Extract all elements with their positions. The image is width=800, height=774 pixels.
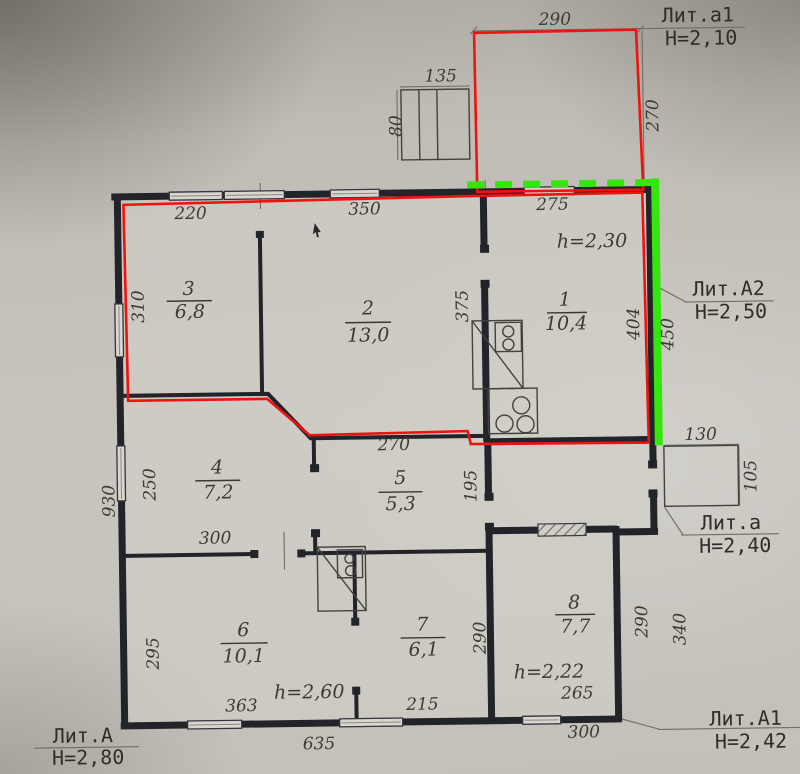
liter-A2-height: Н=2,50 — [695, 299, 768, 324]
dim-bottom-total: 635 — [303, 734, 336, 754]
entrance-steps — [401, 89, 470, 160]
room-2-number: 2 — [361, 297, 374, 319]
room-4-number: 4 — [210, 456, 223, 478]
green-solid-line — [655, 178, 659, 445]
dim-r1-right-inner: 404 — [624, 307, 644, 341]
building-footprint — [115, 186, 659, 725]
liter-A-main-height: Н=2,80 — [52, 745, 125, 770]
dim-r1-right-outer: 450 — [658, 318, 678, 352]
dim-r4-bottom: 300 — [199, 528, 232, 548]
dim-r7-bottom: 215 — [405, 694, 439, 714]
room-6-area: 10,1 — [222, 645, 265, 668]
room-5-area: 5,3 — [385, 493, 416, 515]
liter-A1: Лит.А1 — [709, 706, 782, 731]
room-3-area: 6,8 — [175, 301, 206, 323]
dim-left-total: 930 — [99, 485, 119, 518]
dim-annex-height: 270 — [643, 99, 663, 133]
dim-r6-bottom: 363 — [225, 696, 258, 716]
room-6-fraction-line — [221, 643, 268, 644]
liter-a1-top-height: Н=2,10 — [665, 25, 738, 50]
floor-plan-svg: 290 270 Лит.а1 Н=2,10 135 80 220 350 275… — [0, 0, 800, 774]
dim-hall-right: 195 — [461, 470, 481, 503]
room-7-number: 7 — [416, 614, 429, 636]
dim-r1-top: 275 — [535, 195, 569, 215]
room-1-ceiling: h=2,30 — [557, 230, 628, 253]
scanned-floor-plan: 290 270 Лит.а1 Н=2,10 135 80 220 350 275… — [0, 0, 800, 774]
dim-r6-left: 295 — [143, 637, 163, 671]
dim-r3-top: 220 — [173, 204, 207, 224]
room-5-number: 5 — [394, 467, 406, 489]
liter-A2: Лит.А2 — [692, 276, 765, 301]
room-8-ceiling: h=2,22 — [514, 660, 585, 683]
room-2-fraction-line — [345, 322, 391, 323]
liter-A-main: Лит.А — [53, 723, 114, 748]
liter-a-porch-height: Н=2,40 — [699, 533, 772, 558]
room-1-area: 10,4 — [545, 312, 588, 335]
room-7-area: 6,1 — [408, 638, 439, 660]
red-outline-annex — [474, 30, 643, 192]
dim-r8-right-outer: 340 — [670, 613, 690, 646]
room-8-area: 7,7 — [560, 615, 591, 637]
dim-r1-wall: 375 — [453, 290, 473, 323]
room-6-number: 6 — [237, 619, 249, 641]
dim-steps-width: 135 — [424, 66, 457, 86]
dim-r5-top: 270 — [376, 435, 410, 455]
hatched-wall-section — [538, 523, 586, 536]
room-2-area: 13,0 — [347, 324, 390, 347]
room-6-ceiling: h=2,60 — [274, 681, 345, 704]
dim-r8-right-inner: 290 — [632, 605, 652, 639]
dim-porch-height: 105 — [741, 460, 761, 493]
room-8-number: 8 — [568, 592, 580, 614]
liter-A1-height: Н=2,42 — [715, 729, 788, 754]
dim-r4-left: 250 — [140, 468, 160, 502]
liter-a-porch: Лит.а — [701, 510, 762, 535]
dim-r8-bottom-inner: 265 — [560, 683, 594, 703]
room-1-number: 1 — [559, 289, 571, 311]
room-3-number: 3 — [182, 278, 194, 300]
dim-annex-width: 290 — [538, 10, 572, 30]
dim-porch-width: 130 — [684, 425, 717, 445]
porch-outline — [664, 445, 739, 506]
dim-r7-wall: 290 — [470, 621, 490, 655]
dim-r8-bottom-outer: 300 — [567, 722, 600, 742]
liter-a1-top: Лит.а1 — [662, 2, 735, 27]
room-4-area: 7,2 — [203, 481, 234, 503]
dim-steps-height: 80 — [386, 115, 406, 137]
dim-r3-left: 310 — [129, 290, 149, 323]
dim-r2-top: 350 — [348, 199, 381, 219]
green-dashed-line — [467, 182, 653, 185]
